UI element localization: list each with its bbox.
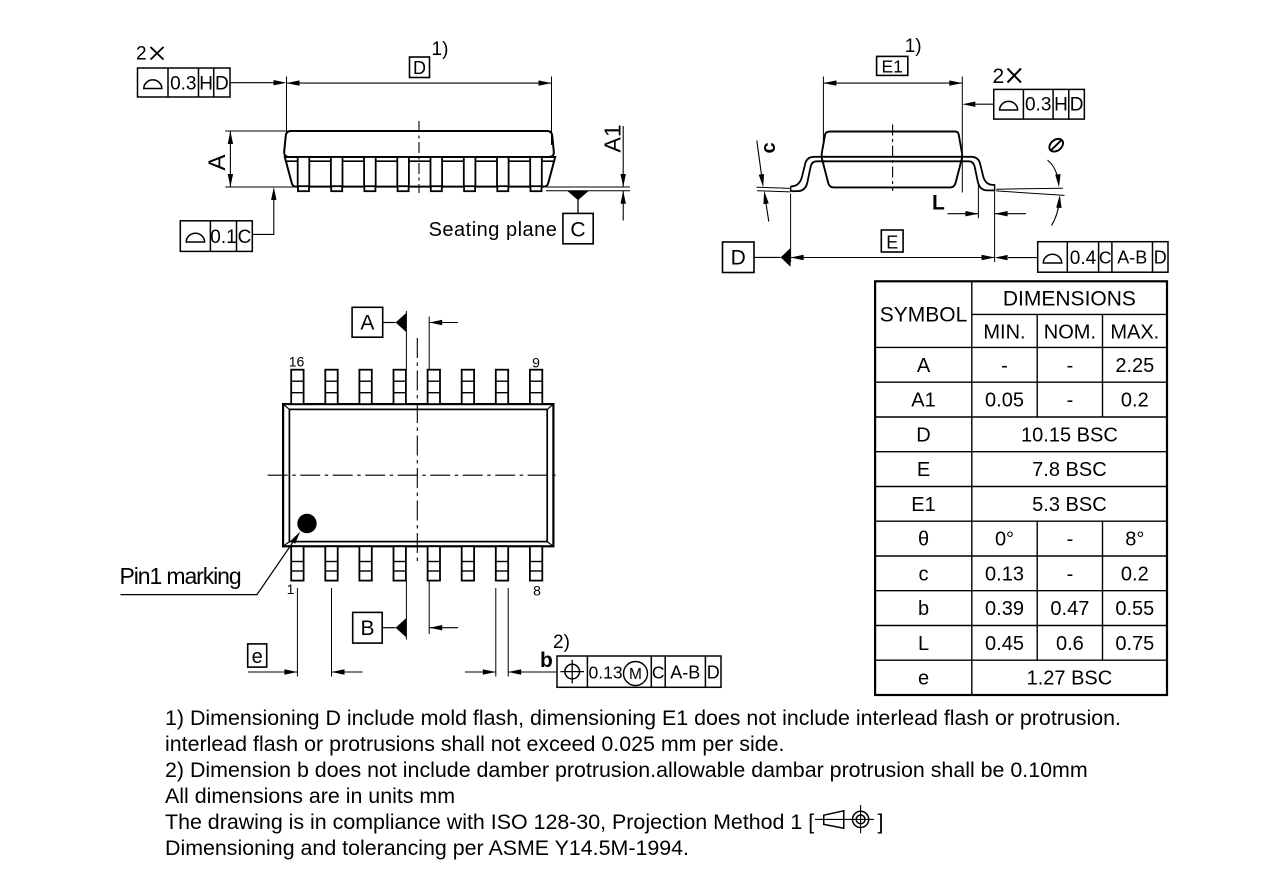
svg-text:0.05: 0.05: [985, 390, 1024, 412]
svg-text:L: L: [918, 633, 929, 655]
svg-text:0.1: 0.1: [210, 227, 236, 248]
svg-text:2: 2: [136, 44, 147, 65]
svg-text:E: E: [917, 459, 930, 481]
svg-text:Pin1 marking: Pin1 marking: [120, 563, 241, 589]
svg-text:C: C: [1099, 248, 1112, 268]
svg-text:A: A: [360, 312, 374, 335]
svg-text:1: 1: [287, 582, 295, 597]
svg-text:M: M: [629, 666, 642, 683]
svg-text:0.39: 0.39: [985, 598, 1024, 620]
svg-text:D: D: [1070, 95, 1084, 116]
svg-text:Dimensioning and tolerancing p: Dimensioning and tolerancing per ASME Y1…: [165, 836, 689, 860]
svg-text:c: c: [919, 563, 929, 585]
svg-text:-: -: [1001, 355, 1008, 377]
svg-text:e: e: [252, 646, 263, 668]
svg-text:D: D: [916, 424, 930, 446]
svg-text:1) Dimensioning D include mold: 1) Dimensioning D include mold flash, di…: [165, 706, 1121, 730]
svg-text:0.3: 0.3: [170, 74, 196, 95]
svg-text:A1: A1: [911, 390, 935, 412]
svg-text:The drawing is in compliance w: The drawing is in compliance with ISO 12…: [165, 810, 814, 834]
svg-text:MIN.: MIN.: [983, 321, 1025, 343]
svg-text:A: A: [917, 355, 931, 377]
svg-text:2) Dimension b does not includ: 2) Dimension b does not include damber p…: [165, 758, 1088, 782]
svg-text:NOM.: NOM.: [1044, 321, 1096, 343]
svg-text:e: e: [918, 668, 929, 690]
svg-text:D: D: [413, 58, 426, 78]
svg-text:0.13: 0.13: [589, 663, 623, 683]
svg-text:0°: 0°: [995, 529, 1014, 551]
svg-text:B: B: [360, 617, 374, 640]
svg-text:]: ]: [878, 810, 884, 834]
svg-text:b: b: [540, 649, 553, 672]
svg-text:5.3 BSC: 5.3 BSC: [1032, 494, 1106, 516]
svg-text:H: H: [199, 74, 213, 95]
svg-text:16: 16: [289, 354, 305, 370]
svg-text:0.3: 0.3: [1025, 95, 1051, 116]
svg-text:A1: A1: [600, 124, 626, 152]
svg-text:c: c: [758, 142, 780, 153]
svg-text:-: -: [1067, 563, 1074, 585]
svg-text:-: -: [1067, 390, 1074, 412]
svg-text:0.13: 0.13: [985, 563, 1024, 585]
svg-text:C: C: [238, 227, 252, 248]
svg-text:E1: E1: [911, 494, 935, 516]
svg-text:8: 8: [533, 583, 541, 599]
svg-text:-: -: [1067, 355, 1074, 377]
svg-text:E1: E1: [881, 57, 902, 77]
svg-text:D: D: [707, 662, 720, 682]
svg-text:0.4: 0.4: [1070, 248, 1097, 269]
svg-text:Seating plane: Seating plane: [429, 219, 558, 241]
svg-text:1.27 BSC: 1.27 BSC: [1027, 668, 1113, 690]
svg-text:0.2: 0.2: [1121, 390, 1149, 412]
svg-text:A-B: A-B: [670, 662, 700, 682]
svg-text:7.8 BSC: 7.8 BSC: [1032, 459, 1106, 481]
svg-text:2.25: 2.25: [1115, 355, 1154, 377]
svg-text:9: 9: [532, 355, 540, 371]
svg-text:2: 2: [993, 65, 1005, 88]
svg-text:SYMBOL: SYMBOL: [880, 304, 968, 327]
svg-text:0.6: 0.6: [1056, 633, 1084, 655]
svg-text:8°: 8°: [1125, 529, 1144, 551]
svg-text:L: L: [932, 192, 945, 215]
svg-text:DIMENSIONS: DIMENSIONS: [1003, 288, 1136, 311]
svg-text:E: E: [886, 233, 898, 253]
svg-text:D: D: [731, 247, 746, 270]
svg-text:1): 1): [432, 39, 449, 60]
svg-text:0.45: 0.45: [985, 633, 1024, 655]
svg-text:D: D: [215, 74, 229, 95]
svg-text:All dimensions are in units mm: All dimensions are in units mm: [165, 784, 455, 808]
svg-text:C: C: [570, 219, 585, 242]
svg-text:H: H: [1054, 95, 1068, 116]
svg-text:10.15 BSC: 10.15 BSC: [1021, 424, 1118, 446]
svg-text:1): 1): [905, 36, 922, 57]
svg-text:2): 2): [553, 632, 570, 653]
svg-text:A-B: A-B: [1117, 248, 1147, 268]
svg-text:θ: θ: [918, 529, 929, 551]
svg-text:0.47: 0.47: [1050, 598, 1089, 620]
svg-text:C: C: [652, 662, 665, 682]
svg-text:-: -: [1067, 529, 1074, 551]
svg-text:D: D: [1154, 248, 1167, 268]
svg-text:0.55: 0.55: [1115, 598, 1154, 620]
svg-text:0.75: 0.75: [1115, 633, 1154, 655]
svg-text:0.2: 0.2: [1121, 563, 1149, 585]
svg-text:MAX.: MAX.: [1110, 321, 1159, 343]
svg-text:interlead flash or protrusions: interlead flash or protrusions shall not…: [165, 732, 784, 756]
svg-text:b: b: [918, 598, 929, 620]
svg-text:A: A: [204, 154, 231, 170]
